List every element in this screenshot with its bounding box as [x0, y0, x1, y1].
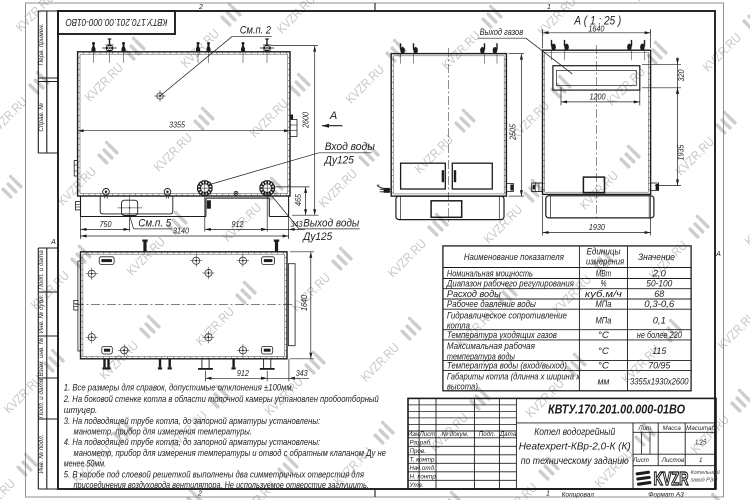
svg-text:1:25: 1:25 — [695, 438, 707, 447]
svg-text:завод РЭП: завод РЭП — [690, 477, 718, 483]
svg-text:высота): высота) — [447, 382, 478, 392]
svg-text:манометр, прибор для измерения: манометр, прибор для измерения температу… — [74, 448, 386, 458]
svg-text:Котел водогрейный: Котел водогрейный — [534, 426, 615, 438]
svg-text:А: А — [329, 110, 337, 122]
svg-text:Выход воды: Выход воды — [303, 217, 359, 229]
svg-text:менее 50мм.: менее 50мм. — [64, 459, 106, 469]
svg-text:Масса: Масса — [663, 425, 682, 432]
svg-text:1640: 1640 — [300, 294, 309, 311]
svg-text:343: 343 — [296, 369, 309, 378]
svg-text:Единицы: Единицы — [587, 247, 621, 257]
svg-text:1200: 1200 — [590, 93, 607, 102]
svg-text:2: 2 — [198, 4, 203, 11]
svg-text:2: 2 — [197, 491, 202, 498]
svg-text:Пров.: Пров. — [410, 448, 426, 455]
svg-text:68: 68 — [654, 289, 665, 299]
svg-text:Разраб.: Разраб. — [410, 440, 432, 447]
svg-text:А: А — [50, 239, 56, 246]
svg-text:Рабочее давление воды: Рабочее давление воды — [447, 299, 536, 309]
svg-text:КВТУ.170.201.00.000-01ВО: КВТУ.170.201.00.000-01ВО — [548, 403, 685, 417]
svg-text:2,0: 2,0 — [652, 268, 667, 278]
svg-text:Температура воды (вход/выход): Температура воды (вход/выход) — [447, 361, 567, 371]
svg-text:Копировал: Копировал — [562, 492, 595, 499]
svg-text:Инв. № дубл.: Инв. № дубл. — [37, 295, 45, 334]
svg-text:3355х1930х2600: 3355х1930х2600 — [630, 377, 689, 387]
svg-text:штуцер.: штуцер. — [64, 405, 98, 415]
svg-text:Диапазон рабочего регулировани: Диапазон рабочего регулирования — [446, 279, 574, 289]
svg-text:Перв. примен.: Перв. примен. — [38, 24, 45, 66]
svg-text:МВт: МВт — [596, 268, 612, 278]
svg-text:куб.м/ч: куб.м/ч — [585, 289, 622, 299]
svg-text:Т. контр.: Т. контр. — [410, 457, 437, 464]
svg-text:Утв.: Утв. — [409, 482, 424, 489]
svg-text:Листов: Листов — [661, 457, 685, 464]
svg-text:См.п. 2: См.п. 2 — [240, 25, 271, 37]
svg-text:А: А — [715, 251, 721, 258]
svg-text:Изм: Изм — [408, 431, 420, 438]
svg-text:Гидравлическое сопротивление: Гидравлическое сопротивление — [447, 310, 567, 320]
svg-text:Подп. и дата: Подп. и дата — [37, 378, 45, 418]
svg-text:750: 750 — [100, 220, 113, 229]
svg-text:манометр, прибор для измерения: манометр, прибор для измерения температу… — [74, 427, 253, 437]
svg-text:Выход газов: Выход газов — [480, 27, 524, 38]
svg-text:Подп.: Подп. — [479, 431, 495, 438]
svg-text:Ду125: Ду125 — [323, 154, 355, 166]
svg-text:1: 1 — [547, 4, 551, 11]
svg-text:Н. контр.: Н. контр. — [410, 474, 438, 481]
svg-text:Справ. №: Справ. № — [38, 103, 45, 132]
svg-text:Heatexpert-КВр-2,0-К (К): Heatexpert-КВр-2,0-К (К) — [519, 440, 631, 452]
svg-text:Лист: Лист — [632, 457, 649, 464]
svg-text:Формат А3: Формат А3 — [648, 492, 684, 499]
svg-text:Лист: Лист — [419, 431, 436, 438]
svg-text:КВТУ.170.201.00.000-01ВО: КВТУ.170.201.00.000-01ВО — [65, 16, 167, 27]
svg-text:Взам. инв. №: Взам. инв. № — [38, 337, 45, 376]
svg-text:Нач.отд.: Нач.отд. — [410, 465, 436, 472]
svg-text:измерения: измерения — [586, 257, 624, 267]
svg-text:Температура уходящих газов: Температура уходящих газов — [447, 330, 557, 340]
svg-text:3. На подводящей трубе котла,: 3. На подводящей трубе котла, до запорно… — [64, 416, 321, 426]
svg-text:320: 320 — [677, 69, 686, 82]
svg-text:70/95: 70/95 — [648, 361, 671, 371]
svg-text:Вход воды: Вход воды — [325, 141, 375, 153]
svg-text:Габариты котла (длинна х ширин: Габариты котла (длинна х ширина х — [447, 371, 580, 381]
svg-text:1: 1 — [699, 457, 702, 464]
svg-text:KVZR: KVZR — [654, 468, 689, 489]
svg-text:Наименование показателя: Наименование показателя — [464, 252, 564, 262]
svg-text:50-100: 50-100 — [646, 279, 673, 289]
svg-text:Масштаб: Масштаб — [686, 425, 715, 432]
svg-text:2. На боковой стенке котла в о: 2. На боковой стенке котла в области топ… — [63, 394, 379, 404]
svg-text:присоединения воздуховода вент: присоединения воздуховода вентилятора. Н… — [74, 480, 369, 490]
svg-text:2505: 2505 — [508, 123, 517, 141]
svg-text:1: 1 — [546, 491, 550, 498]
svg-text:2600: 2600 — [301, 111, 310, 129]
svg-text:3140: 3140 — [173, 227, 190, 236]
svg-text:Расход воды: Расход воды — [447, 289, 501, 299]
svg-text:№ докум.: № докум. — [441, 431, 468, 438]
svg-text:МПа: МПа — [595, 299, 611, 309]
svg-text:См.п. 5: См.п. 5 — [138, 218, 172, 230]
svg-text:5. В коробе под слоевой решетк: 5. В коробе под слоевой решеткой выполне… — [64, 469, 364, 479]
svg-text:0,1: 0,1 — [653, 316, 666, 326]
svg-text:Ду125: Ду125 — [301, 231, 333, 243]
svg-text:912: 912 — [237, 369, 250, 378]
svg-text:Лит.: Лит. — [637, 425, 653, 432]
svg-text:°С: °С — [598, 330, 609, 340]
svg-text:3355: 3355 — [169, 121, 186, 130]
svg-text:°С: °С — [598, 346, 609, 356]
svg-text:4. На подводящей трубе котла,: 4. На подводящей трубе котла, до запорно… — [64, 437, 321, 447]
svg-text:%: % — [600, 279, 606, 289]
svg-text:Максимальная рабочая: Максимальная рабочая — [447, 341, 535, 351]
svg-text:1935: 1935 — [677, 144, 686, 161]
svg-text:465: 465 — [294, 193, 303, 206]
svg-text:1640: 1640 — [588, 24, 605, 33]
svg-text:Дата: Дата — [499, 431, 517, 438]
svg-text:0,3-0,6: 0,3-0,6 — [644, 299, 675, 309]
svg-text:Инв. № подл.: Инв. № подл. — [37, 434, 45, 473]
svg-text:343: 343 — [291, 220, 304, 229]
svg-text:не более 220: не более 220 — [637, 330, 683, 340]
svg-text:115: 115 — [652, 346, 667, 356]
svg-text:Номинальная мощность: Номинальная мощность — [447, 268, 533, 278]
svg-text:°С: °С — [598, 361, 609, 371]
svg-text:МПа: МПа — [595, 316, 611, 326]
svg-text:Значение: Значение — [638, 252, 675, 262]
svg-text:1. Все размеры для справок, до: 1. Все размеры для справок, допустимые о… — [64, 383, 294, 393]
svg-text:Котельный: Котельный — [691, 469, 720, 476]
svg-text:по техническому заданию: по техническому заданию — [521, 455, 629, 467]
svg-text:1930: 1930 — [589, 223, 606, 232]
svg-text:мм: мм — [597, 377, 610, 387]
svg-text:912: 912 — [232, 220, 245, 229]
svg-text:Подп. и дата: Подп. и дата — [37, 250, 45, 290]
